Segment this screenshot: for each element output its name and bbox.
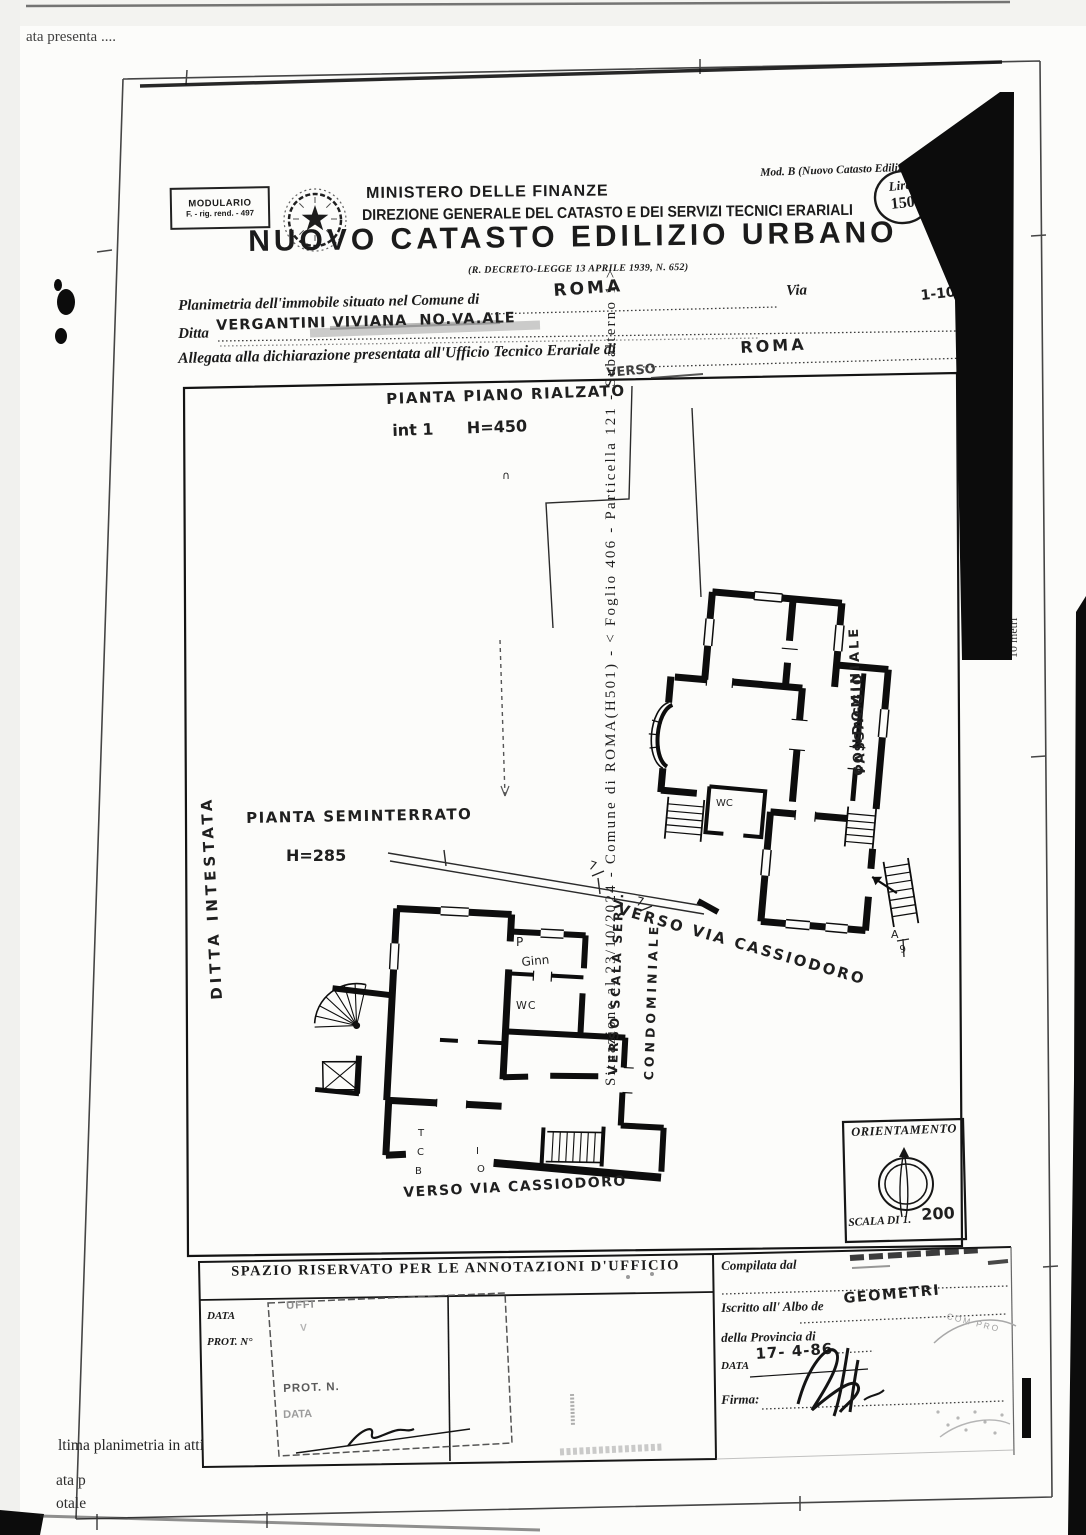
left-edge-blob	[57, 289, 75, 315]
round-stamp-arc	[934, 1320, 1016, 1343]
black-wedge	[898, 92, 1014, 660]
geometra-signature	[798, 1348, 859, 1416]
scanned-cadastral-document: ata presenta .... MODULARIO F. - rig. re…	[0, 0, 1086, 1535]
signatures	[296, 1348, 884, 1453]
scan-overlay	[0, 0, 1086, 1535]
smudges	[310, 322, 1016, 1452]
right-edge-bar	[1068, 596, 1086, 1535]
bottom-left-blob	[0, 1510, 44, 1535]
scan-artifacts	[0, 92, 1086, 1535]
